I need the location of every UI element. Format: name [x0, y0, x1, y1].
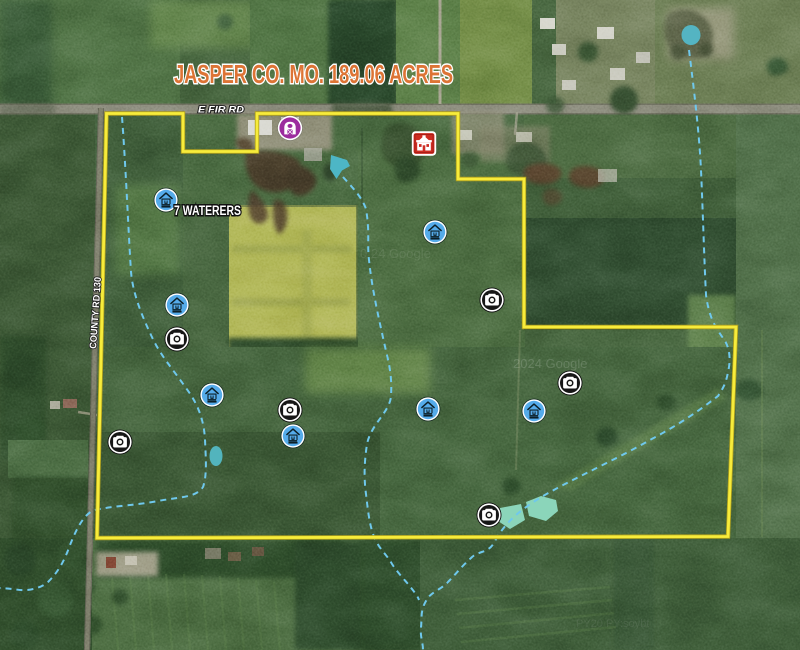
svg-text:E FIR RD: E FIR RD	[198, 105, 245, 115]
svg-text:PY20 PY:soybt: PY20 PY:soybt	[576, 618, 649, 630]
svg-text:7 WATERERS: 7 WATERERS	[174, 203, 241, 218]
svg-text:0 24 Google: 0 24 Google	[360, 246, 431, 261]
svg-text:JASPER CO. MO. 189.06 ACRES: JASPER CO. MO. 189.06 ACRES	[174, 59, 453, 89]
svg-text:2024 Google: 2024 Google	[513, 356, 587, 371]
